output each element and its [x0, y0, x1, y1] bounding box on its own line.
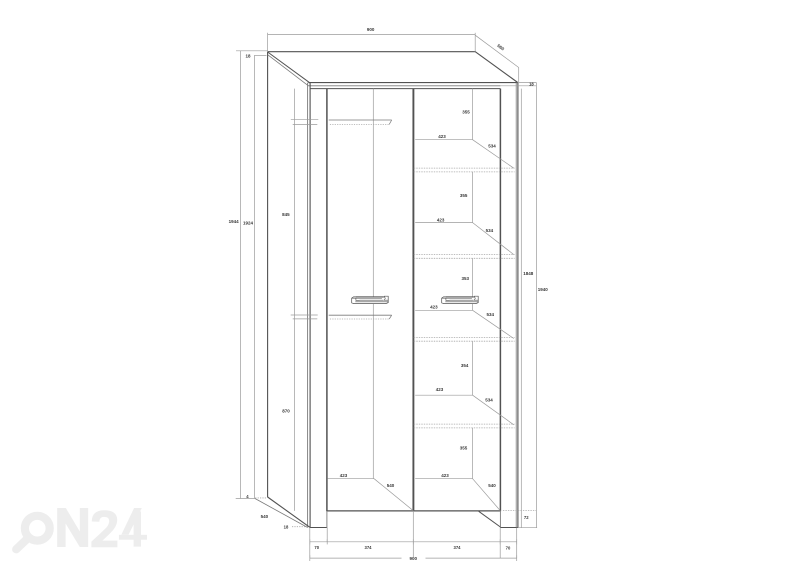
- svg-text:423: 423: [438, 134, 446, 139]
- svg-text:423: 423: [340, 473, 348, 478]
- svg-text:534: 534: [486, 228, 494, 233]
- svg-text:534: 534: [485, 397, 493, 402]
- svg-text:18: 18: [529, 81, 534, 86]
- svg-text:423: 423: [437, 218, 445, 223]
- svg-text:1848: 1848: [523, 271, 534, 276]
- svg-text:355: 355: [460, 445, 468, 450]
- svg-text:423: 423: [436, 387, 444, 392]
- svg-text:540: 540: [261, 514, 269, 519]
- svg-text:70: 70: [506, 546, 511, 551]
- svg-text:534: 534: [488, 144, 496, 149]
- svg-text:423: 423: [430, 305, 438, 310]
- svg-text:1924: 1924: [243, 220, 254, 225]
- svg-text:900: 900: [367, 27, 375, 32]
- svg-text:540: 540: [387, 483, 395, 488]
- svg-text:72: 72: [524, 515, 529, 520]
- svg-text:18: 18: [245, 53, 251, 58]
- svg-text:70: 70: [314, 545, 319, 550]
- svg-text:355: 355: [460, 193, 468, 198]
- svg-text:374: 374: [365, 545, 373, 550]
- svg-text:18: 18: [284, 525, 289, 530]
- svg-text:1944: 1944: [229, 219, 240, 224]
- svg-text:1940: 1940: [538, 287, 549, 292]
- svg-text:354: 354: [461, 363, 469, 368]
- svg-text:870: 870: [282, 409, 290, 414]
- svg-text:423: 423: [441, 473, 449, 478]
- svg-text:540: 540: [488, 483, 496, 488]
- svg-text:355: 355: [462, 110, 470, 115]
- svg-text:353: 353: [462, 276, 470, 281]
- svg-text:374: 374: [454, 545, 462, 550]
- svg-text:845: 845: [282, 212, 290, 217]
- svg-text:534: 534: [486, 312, 494, 317]
